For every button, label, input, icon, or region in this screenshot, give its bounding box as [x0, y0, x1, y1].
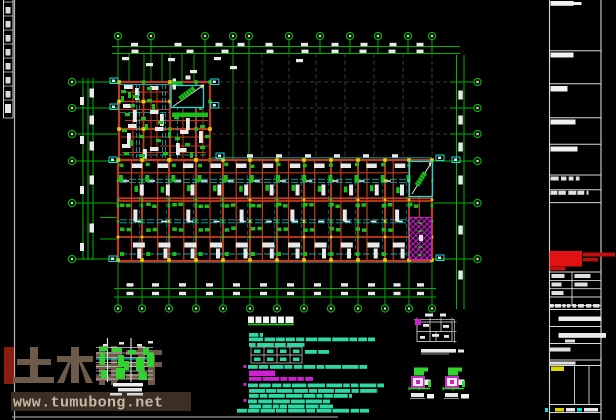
svg-text:www.tumubong.net: www.tumubong.net: [13, 395, 163, 412]
